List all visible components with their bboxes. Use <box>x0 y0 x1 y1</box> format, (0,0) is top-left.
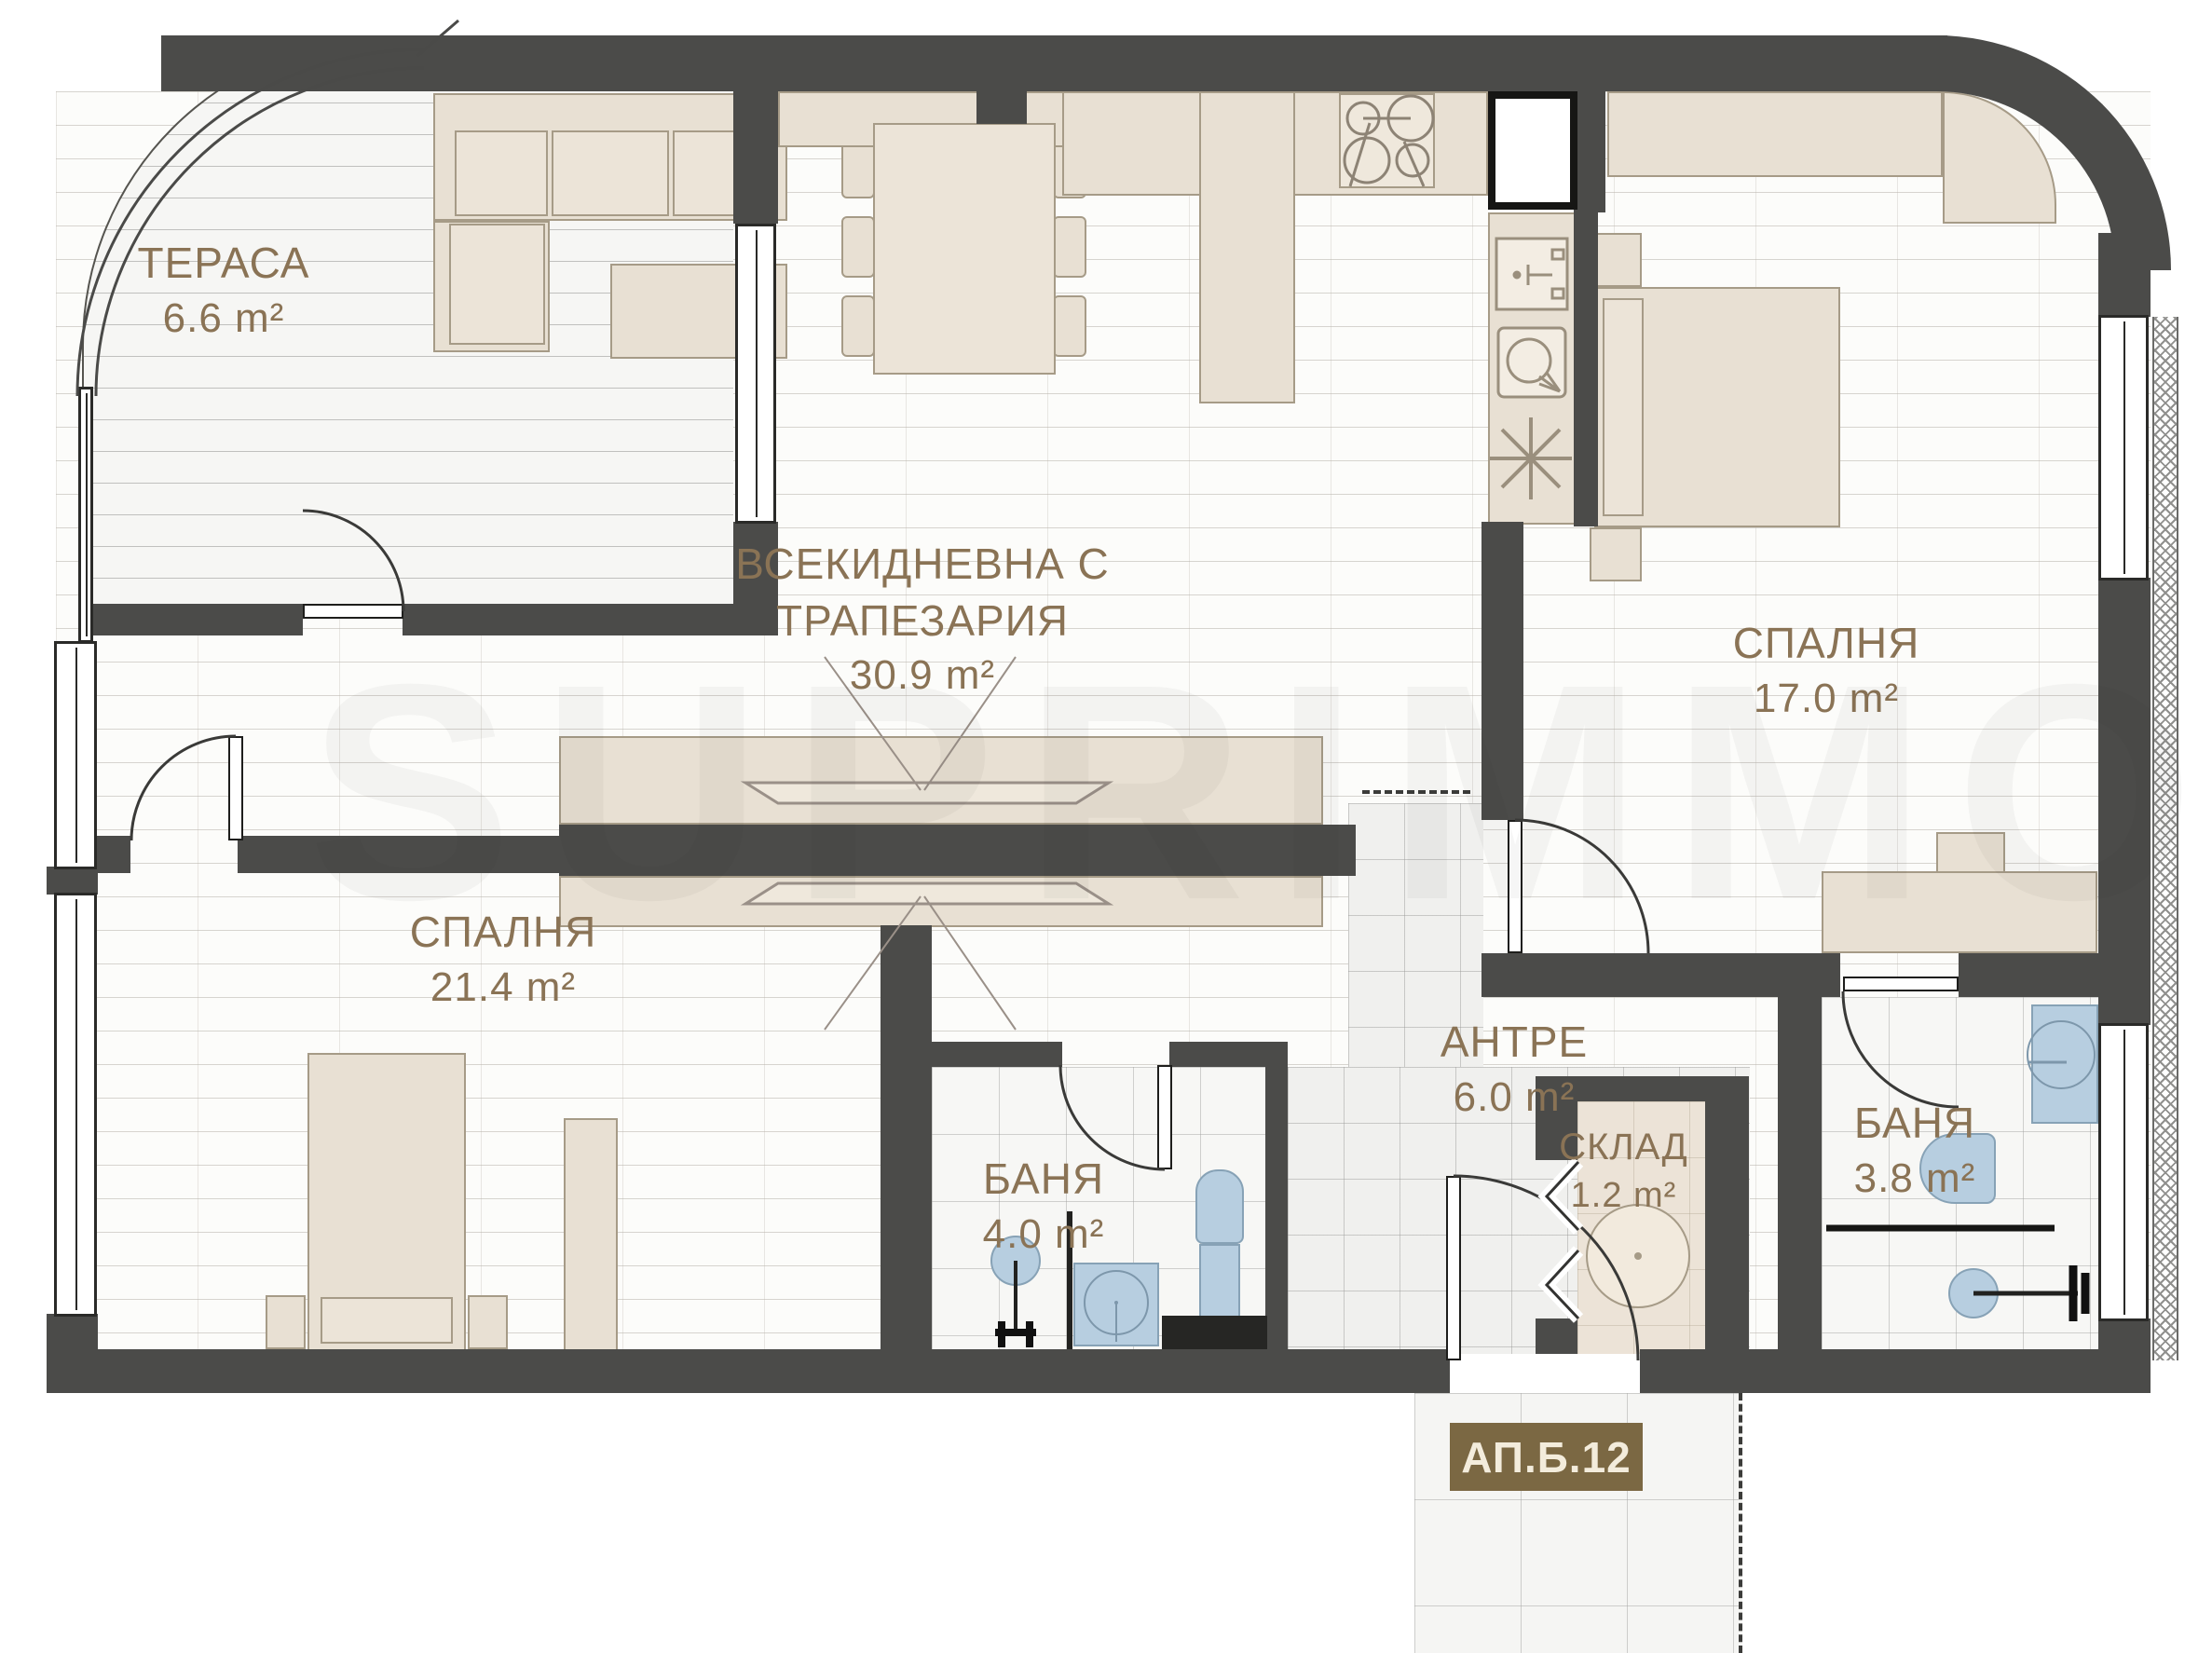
insulation-hatch <box>2152 317 2178 1360</box>
wall-storage <box>1705 1076 1749 1354</box>
wall-storage <box>1536 1318 1577 1354</box>
room-name-line2: ТРАПЕЗАРИЯ <box>708 593 1137 649</box>
wall-ledge <box>1162 1316 1267 1349</box>
room-label-living-dining: ВСЕКИДНЕВНА С ТРАПЕЗАРИЯ 30.9 m² <box>708 536 1137 704</box>
door-bedroom-right <box>1508 820 1522 953</box>
nightstand <box>1590 527 1642 581</box>
room-label-bathroom-left: БАНЯ 4.0 m² <box>936 1151 1151 1262</box>
room-label-storage: СКЛАД 1.2 m² <box>1542 1123 1705 1219</box>
room-name: БАНЯ <box>1798 1095 2031 1152</box>
sink-bath-right <box>2031 1004 2098 1124</box>
wall <box>93 836 130 873</box>
room-name: АНТРЕ <box>1416 1014 1612 1071</box>
room-area: 4.0 m² <box>936 1208 1151 1262</box>
media-cabinet-bedroom <box>559 876 1323 927</box>
floor-plan: ТЕРАСА 6.6 m² ВСЕКИДНЕВНА С ТРАПЕЗАРИЯ 3… <box>0 0 2212 1653</box>
door-entrance <box>1446 1176 1461 1360</box>
room-area: 17.0 m² <box>1677 672 1975 726</box>
room-label-bedroom-left: СПАЛНЯ 21.4 m² <box>363 904 643 1015</box>
terrace-rail-west <box>78 387 93 643</box>
window-right-bedroom <box>2098 315 2149 581</box>
room-name: БАНЯ <box>936 1151 1151 1208</box>
bed-pillow <box>321 1297 453 1344</box>
opening-living-hall <box>1362 790 1470 794</box>
room-label-bathroom-right: БАНЯ 3.8 m² <box>1798 1095 2031 1206</box>
room-label-terrace: ТЕРАСА 6.6 m² <box>98 235 349 346</box>
sofa-cushion <box>455 130 548 216</box>
wall <box>47 867 98 895</box>
room-name: СКЛАД <box>1542 1123 1705 1172</box>
wall <box>976 91 1027 124</box>
ventilation-shaft <box>1488 91 1577 210</box>
terrace-glazing-east <box>735 224 776 524</box>
dining-chair <box>1053 216 1086 278</box>
nightstand <box>266 1295 306 1349</box>
wall <box>1577 91 1605 212</box>
door-bath-left <box>1157 1065 1172 1169</box>
wall-room-divider <box>559 825 1356 876</box>
kitchen-island <box>1199 91 1295 403</box>
sink-bath-left <box>1073 1263 1159 1346</box>
utility-column <box>1488 212 1577 525</box>
room-area: 6.6 m² <box>98 292 349 346</box>
stove <box>1339 93 1435 188</box>
desk-bedroom-right <box>1822 871 2097 953</box>
room-name: ВСЕКИДНЕВНА С <box>708 536 1137 593</box>
window-left-upper <box>54 641 97 869</box>
boiler-icon <box>1586 1204 1690 1308</box>
nightstand <box>468 1295 508 1349</box>
wall-terrace-divider <box>733 91 778 224</box>
wall <box>2098 233 2151 317</box>
bed-pillow <box>1603 298 1644 516</box>
room-label-entry-hall: АНТРЕ 6.0 m² <box>1416 1014 1612 1125</box>
sofa-cushion <box>552 130 669 216</box>
wall <box>161 35 1947 91</box>
door-bedroom-left <box>228 736 243 840</box>
toilet-bath-left <box>1195 1169 1244 1244</box>
wall <box>1574 210 1598 526</box>
wardrobe-bedroom-right <box>1607 91 1943 177</box>
wall <box>47 1314 98 1393</box>
window-right-bath <box>2098 1023 2149 1321</box>
wall <box>1481 522 1523 820</box>
wall-bottom <box>51 1349 1450 1393</box>
room-area: 21.4 m² <box>363 961 643 1015</box>
shower-head-bath-right <box>1948 1268 1999 1318</box>
room-label-bedroom-right: СПАЛНЯ 17.0 m² <box>1677 615 1975 726</box>
media-cabinet-living <box>559 736 1323 825</box>
room-area: 3.8 m² <box>1798 1152 2031 1206</box>
wardrobe-bedroom-left <box>564 1118 618 1354</box>
dining-chair <box>841 216 875 278</box>
dining-chair <box>1053 295 1086 357</box>
door-terrace <box>303 604 403 619</box>
room-name: СПАЛНЯ <box>1677 615 1975 672</box>
wall <box>1265 1042 1288 1354</box>
room-name: СПАЛНЯ <box>363 904 643 961</box>
wall <box>238 836 564 873</box>
door-bath-right <box>1843 977 1959 991</box>
room-name: ТЕРАСА <box>98 235 349 292</box>
sofa-cushion <box>449 224 545 345</box>
apartment-badge: АП.Б.12 <box>1450 1423 1643 1491</box>
window-left-lower <box>54 893 97 1317</box>
corridor-boundary <box>1739 1393 1742 1653</box>
wall <box>2098 578 2151 1025</box>
wall <box>922 1042 1062 1067</box>
room-area: 6.0 m² <box>1416 1071 1612 1125</box>
wall <box>1481 953 1840 997</box>
wall-terrace-south <box>84 604 303 635</box>
wall <box>1959 953 2098 997</box>
dining-chair <box>841 295 875 357</box>
desk-chair <box>1936 832 2005 873</box>
wall-bottom <box>1640 1349 2151 1393</box>
dining-table <box>873 123 1056 375</box>
wall <box>881 925 932 1354</box>
room-area: 30.9 m² <box>708 649 1137 703</box>
room-area: 1.2 m² <box>1542 1172 1705 1219</box>
